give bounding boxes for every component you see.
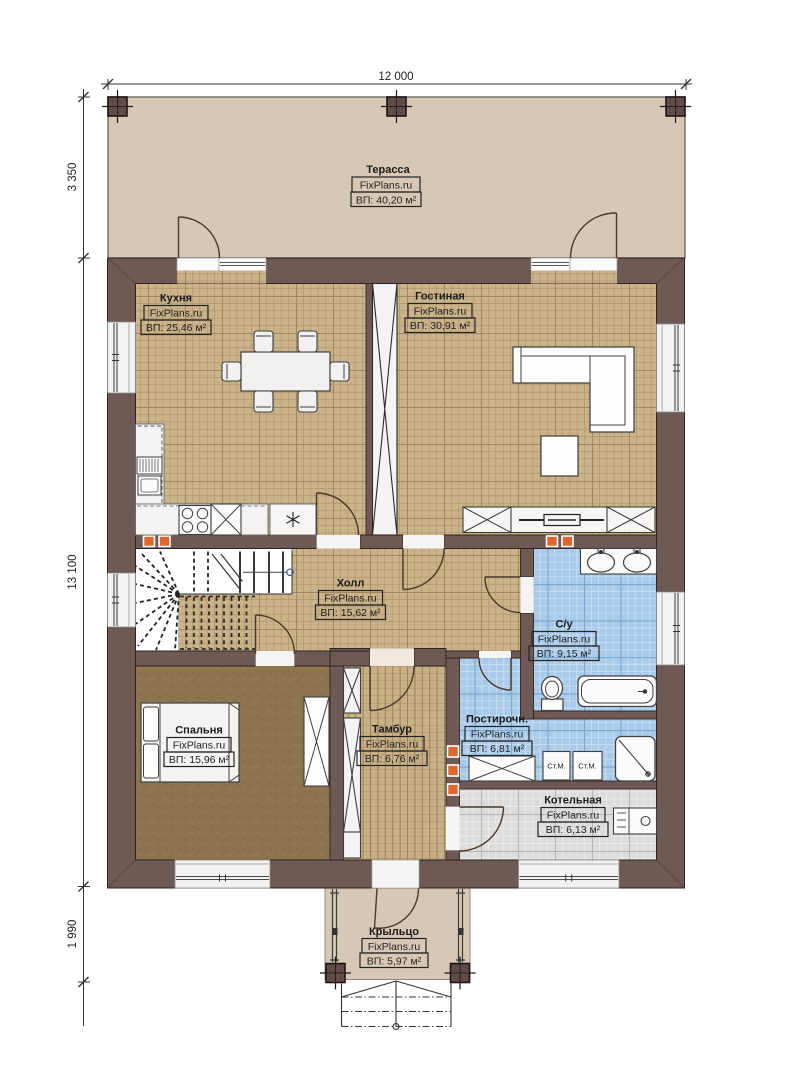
svg-text:ВП: 6,76 м²: ВП: 6,76 м² xyxy=(365,753,420,765)
svg-text:FixPlans.ru: FixPlans.ru xyxy=(471,729,524,741)
svg-text:1 990: 1 990 xyxy=(67,920,79,949)
svg-text:ВП: 6,13 м²: ВП: 6,13 м² xyxy=(546,824,601,836)
svg-text:ВП: 15,96 м²: ВП: 15,96 м² xyxy=(169,754,230,766)
svg-text:ВП: 25,46 м²: ВП: 25,46 м² xyxy=(146,322,207,334)
svg-text:ВП: 6,81 м²: ВП: 6,81 м² xyxy=(470,743,525,755)
svg-text:ВП: 15,62 м²: ВП: 15,62 м² xyxy=(320,607,381,619)
svg-text:Ст.М.: Ст.М. xyxy=(578,762,596,771)
svg-text:Тамбур: Тамбур xyxy=(372,724,412,736)
svg-text:С/у: С/у xyxy=(555,619,573,631)
svg-text:ВП: 5,97 м²: ВП: 5,97 м² xyxy=(367,956,422,968)
svg-text:ВП: 40,20 м²: ВП: 40,20 м² xyxy=(356,195,417,207)
svg-text:Постирочн.: Постирочн. xyxy=(466,714,528,726)
svg-text:12 000: 12 000 xyxy=(378,71,413,83)
svg-text:ВП: 30,91 м²: ВП: 30,91 м² xyxy=(410,320,471,332)
svg-text:Ст.М.: Ст.М. xyxy=(547,762,565,771)
svg-text:3 350: 3 350 xyxy=(67,163,79,192)
svg-text:FixPlans.ru: FixPlans.ru xyxy=(414,306,467,318)
svg-text:Терасса: Терасса xyxy=(366,164,410,176)
svg-text:Холл: Холл xyxy=(337,578,365,590)
svg-text:FixPlans.ru: FixPlans.ru xyxy=(547,810,600,822)
svg-text:13 100: 13 100 xyxy=(67,554,79,589)
svg-text:FixPlans.ru: FixPlans.ru xyxy=(324,593,377,605)
svg-text:FixPlans.ru: FixPlans.ru xyxy=(150,308,203,320)
svg-text:Гостиная: Гостиная xyxy=(415,291,465,303)
svg-text:FixPlans.ru: FixPlans.ru xyxy=(173,740,226,752)
svg-text:FixPlans.ru: FixPlans.ru xyxy=(368,941,421,953)
svg-text:FixPlans.ru: FixPlans.ru xyxy=(360,180,413,192)
svg-text:FixPlans.ru: FixPlans.ru xyxy=(538,634,591,646)
svg-text:Спальня: Спальня xyxy=(175,725,223,737)
svg-text:ВП: 9,15 м²: ВП: 9,15 м² xyxy=(537,648,592,660)
svg-text:Котельная: Котельная xyxy=(544,795,602,807)
svg-text:FixPlans.ru: FixPlans.ru xyxy=(366,739,419,751)
svg-text:Кухня: Кухня xyxy=(160,293,192,305)
